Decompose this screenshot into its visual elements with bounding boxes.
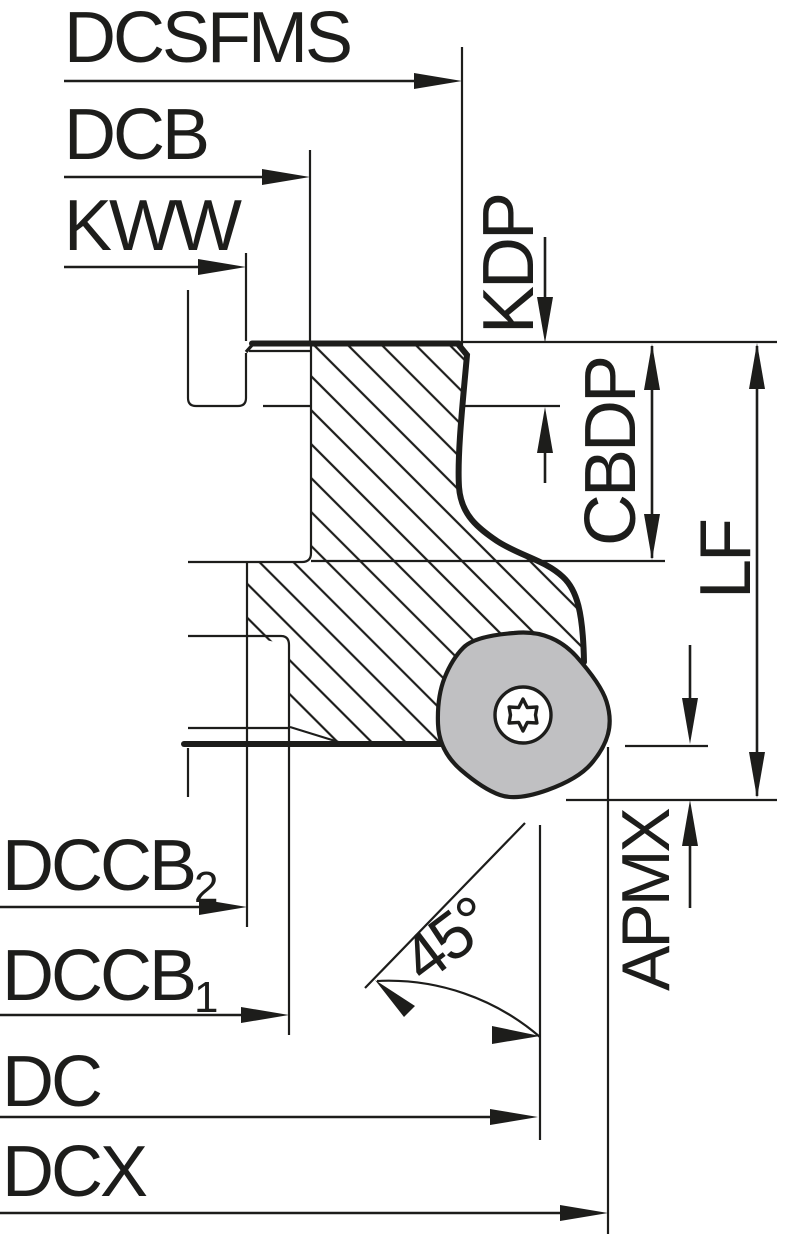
label-angle-45: 45° (388, 882, 505, 996)
label-apmx: APMX (608, 809, 684, 991)
label-lf: LF (686, 520, 766, 599)
apmx-arrowhead-down (682, 698, 698, 744)
dccb1-arrowhead (241, 1007, 289, 1023)
angle-arrowhead-right (492, 1026, 540, 1044)
keyway-profile-line (188, 290, 246, 406)
label-dcb: DCB (64, 95, 207, 175)
label-dcsfms: DCSFMS (64, 0, 350, 78)
lf-arrowhead-up (749, 343, 765, 389)
dc-arrowhead (490, 1109, 538, 1125)
label-dccb1: DCCB1 (2, 936, 217, 1022)
label-dcx: DCX (2, 1132, 147, 1212)
technical-drawing-face-mill-section: DCSFMS DCB KWW KDP CBDP LF APMX DCCB2 DC… (0, 0, 800, 1250)
label-kdp: KDP (469, 195, 549, 334)
kdp-arrowhead-up (537, 407, 553, 453)
label-kww: KWW (64, 186, 242, 266)
dcx-arrowhead (560, 1205, 608, 1221)
bore-wall-line (188, 344, 311, 562)
label-dc: DC (2, 1042, 101, 1122)
drawing-canvas: DCSFMS DCB KWW KDP CBDP LF APMX DCCB2 DC… (0, 0, 800, 1250)
dcsfms-arrowhead (414, 73, 462, 89)
dcb-arrowhead (262, 169, 310, 185)
label-cbdp: CBDP (571, 358, 651, 546)
angle-arrowhead-left (375, 980, 415, 1017)
lf-arrowhead-down (749, 752, 765, 798)
label-dccb2: DCCB2 (2, 826, 217, 912)
apmx-arrowhead-up (682, 800, 698, 846)
